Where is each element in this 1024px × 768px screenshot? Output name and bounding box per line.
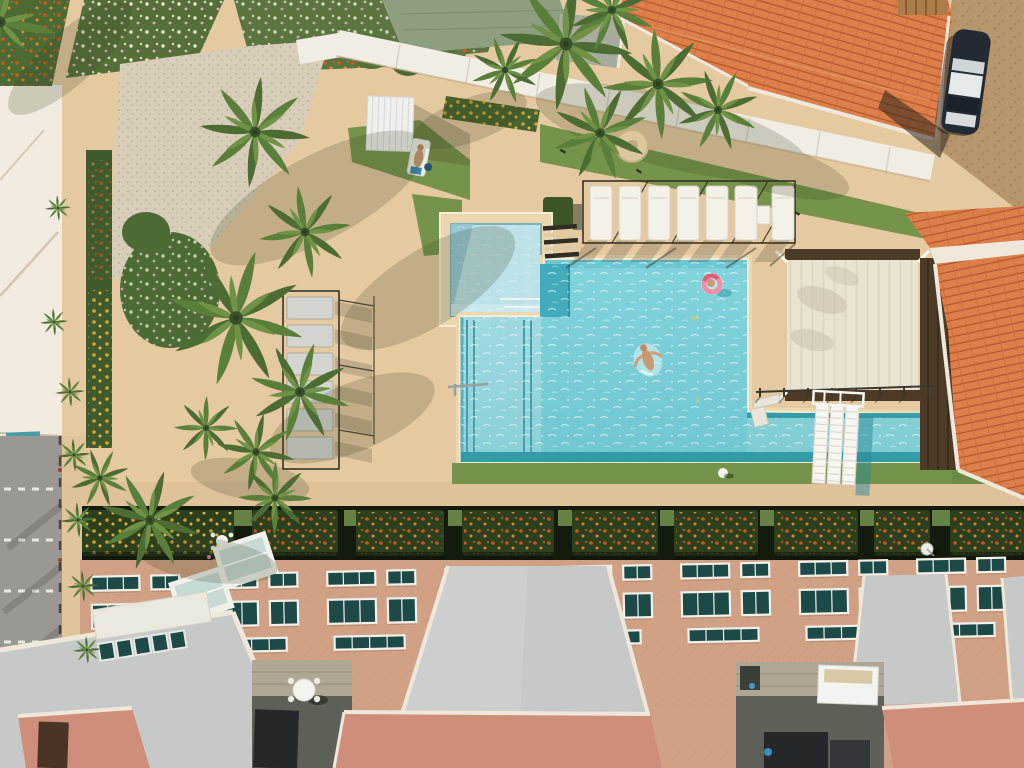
couch [253,709,299,768]
patio-right [736,662,884,768]
round-dining-table [293,679,315,701]
dark-roof-section [37,721,69,768]
canopy-beam-top [785,249,920,260]
blue-bucket [764,748,772,756]
side-table [757,206,770,224]
aerial-resort-photo [0,0,1024,768]
couch [764,732,828,768]
